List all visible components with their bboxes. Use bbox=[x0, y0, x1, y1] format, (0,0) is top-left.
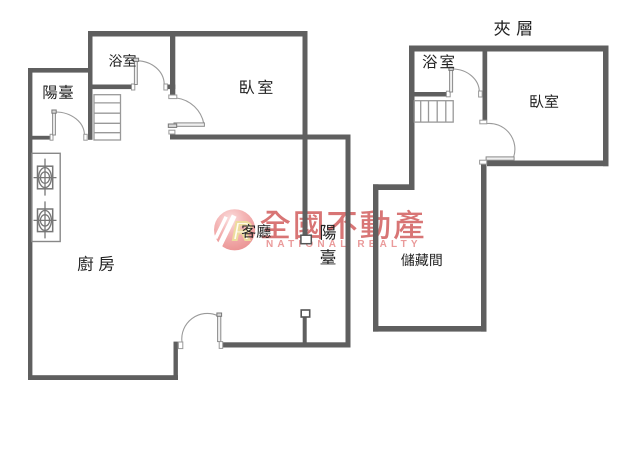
svg-text:NATIONAL REALTY: NATIONAL REALTY bbox=[266, 239, 422, 250]
